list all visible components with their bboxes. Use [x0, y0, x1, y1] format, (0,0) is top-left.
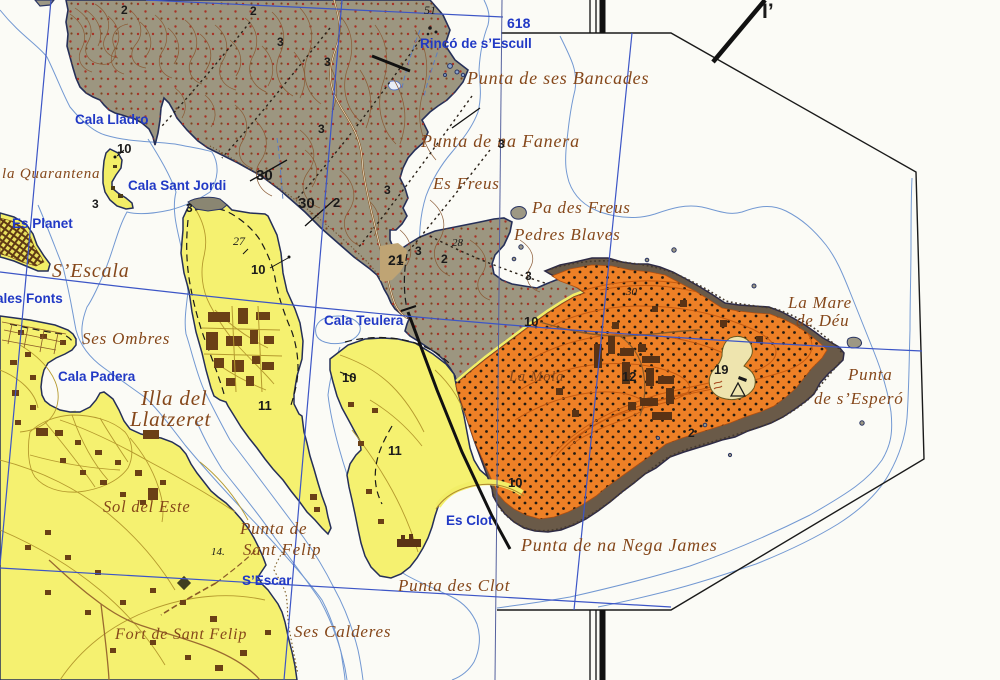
- svg-text:2: 2: [121, 3, 128, 17]
- svg-text:3: 3: [525, 269, 532, 283]
- svg-text:3: 3: [498, 137, 505, 151]
- svg-text:Ses Calderes: Ses Calderes: [294, 622, 391, 641]
- svg-text:de s’Esperó: de s’Esperó: [814, 389, 904, 408]
- svg-text:618: 618: [507, 15, 531, 31]
- svg-text:12: 12: [622, 369, 636, 384]
- svg-text:Ses Ombres: Ses Ombres: [82, 329, 170, 348]
- svg-text:3: 3: [277, 35, 284, 49]
- svg-text:11: 11: [388, 443, 402, 458]
- svg-text:Fort de Sant Felip: Fort de Sant Felip: [114, 626, 247, 643]
- svg-text:Rincó de s’Escull: Rincó de s’Escull: [420, 36, 532, 51]
- svg-text:14.: 14.: [211, 546, 225, 558]
- svg-text:1: 1: [397, 252, 404, 266]
- svg-text:Punta de: Punta de: [239, 519, 307, 538]
- svg-text:2: 2: [333, 195, 340, 210]
- svg-text:La Mare: La Mare: [787, 293, 852, 312]
- svg-text:Sant Felip: Sant Felip: [243, 540, 321, 559]
- svg-text:10: 10: [524, 314, 538, 329]
- svg-text:Es Freus: Es Freus: [432, 174, 500, 193]
- svg-text:30: 30: [298, 195, 315, 212]
- svg-text:Punta des Clot: Punta des Clot: [397, 576, 511, 595]
- svg-text:28: 28: [452, 237, 464, 249]
- svg-text:3: 3: [186, 201, 193, 215]
- svg-text:3: 3: [92, 197, 99, 211]
- svg-text:Cala Teulera: Cala Teulera: [324, 313, 404, 328]
- svg-text:Es Planet: Es Planet: [12, 216, 73, 231]
- svg-text:30: 30: [256, 167, 273, 184]
- svg-text:Punta de ses Bancades: Punta de ses Bancades: [466, 68, 649, 88]
- svg-text:Pedres Blaves: Pedres Blaves: [513, 225, 621, 244]
- svg-text:S’Escala: S’Escala: [52, 260, 130, 282]
- svg-text:la Quarantena: la Quarantena: [2, 166, 100, 182]
- svg-text:Punta: Punta: [847, 365, 893, 384]
- svg-text:Sol del Este: Sol del Este: [103, 497, 191, 516]
- svg-text:51: 51: [424, 3, 436, 17]
- svg-text:Cala Padera: Cala Padera: [58, 369, 136, 384]
- svg-text:3: 3: [324, 55, 331, 69]
- svg-text:10: 10: [251, 262, 265, 277]
- svg-text:Cala Lladro: Cala Lladro: [75, 112, 149, 127]
- svg-text:30: 30: [625, 286, 638, 298]
- svg-text:2: 2: [441, 252, 448, 266]
- svg-text:Llatzeret: Llatzeret: [129, 407, 211, 431]
- svg-text:Punta de na Nega James: Punta de na Nega James: [520, 535, 718, 555]
- svg-text:ales Fonts: ales Fonts: [0, 291, 63, 306]
- svg-text:S’Escar: S’Escar: [242, 573, 292, 588]
- svg-text:11: 11: [258, 398, 272, 413]
- svg-text:3: 3: [384, 183, 391, 197]
- svg-text:2: 2: [250, 4, 257, 18]
- svg-text:Cala Sant Jordi: Cala Sant Jordi: [128, 178, 226, 193]
- svg-text:Pa des Freus: Pa des Freus: [531, 198, 631, 217]
- svg-text:10: 10: [508, 475, 522, 490]
- svg-text:I’: I’: [762, 0, 774, 23]
- svg-text:Es Clot: Es Clot: [446, 513, 493, 528]
- svg-text:de Déu: de Déu: [796, 311, 849, 330]
- svg-text:3: 3: [415, 244, 422, 258]
- svg-text:27: 27: [233, 234, 246, 248]
- svg-text:La Mola: La Mola: [508, 369, 564, 385]
- svg-text:2: 2: [688, 426, 695, 440]
- svg-text:3: 3: [318, 122, 325, 136]
- svg-text:19: 19: [714, 362, 728, 377]
